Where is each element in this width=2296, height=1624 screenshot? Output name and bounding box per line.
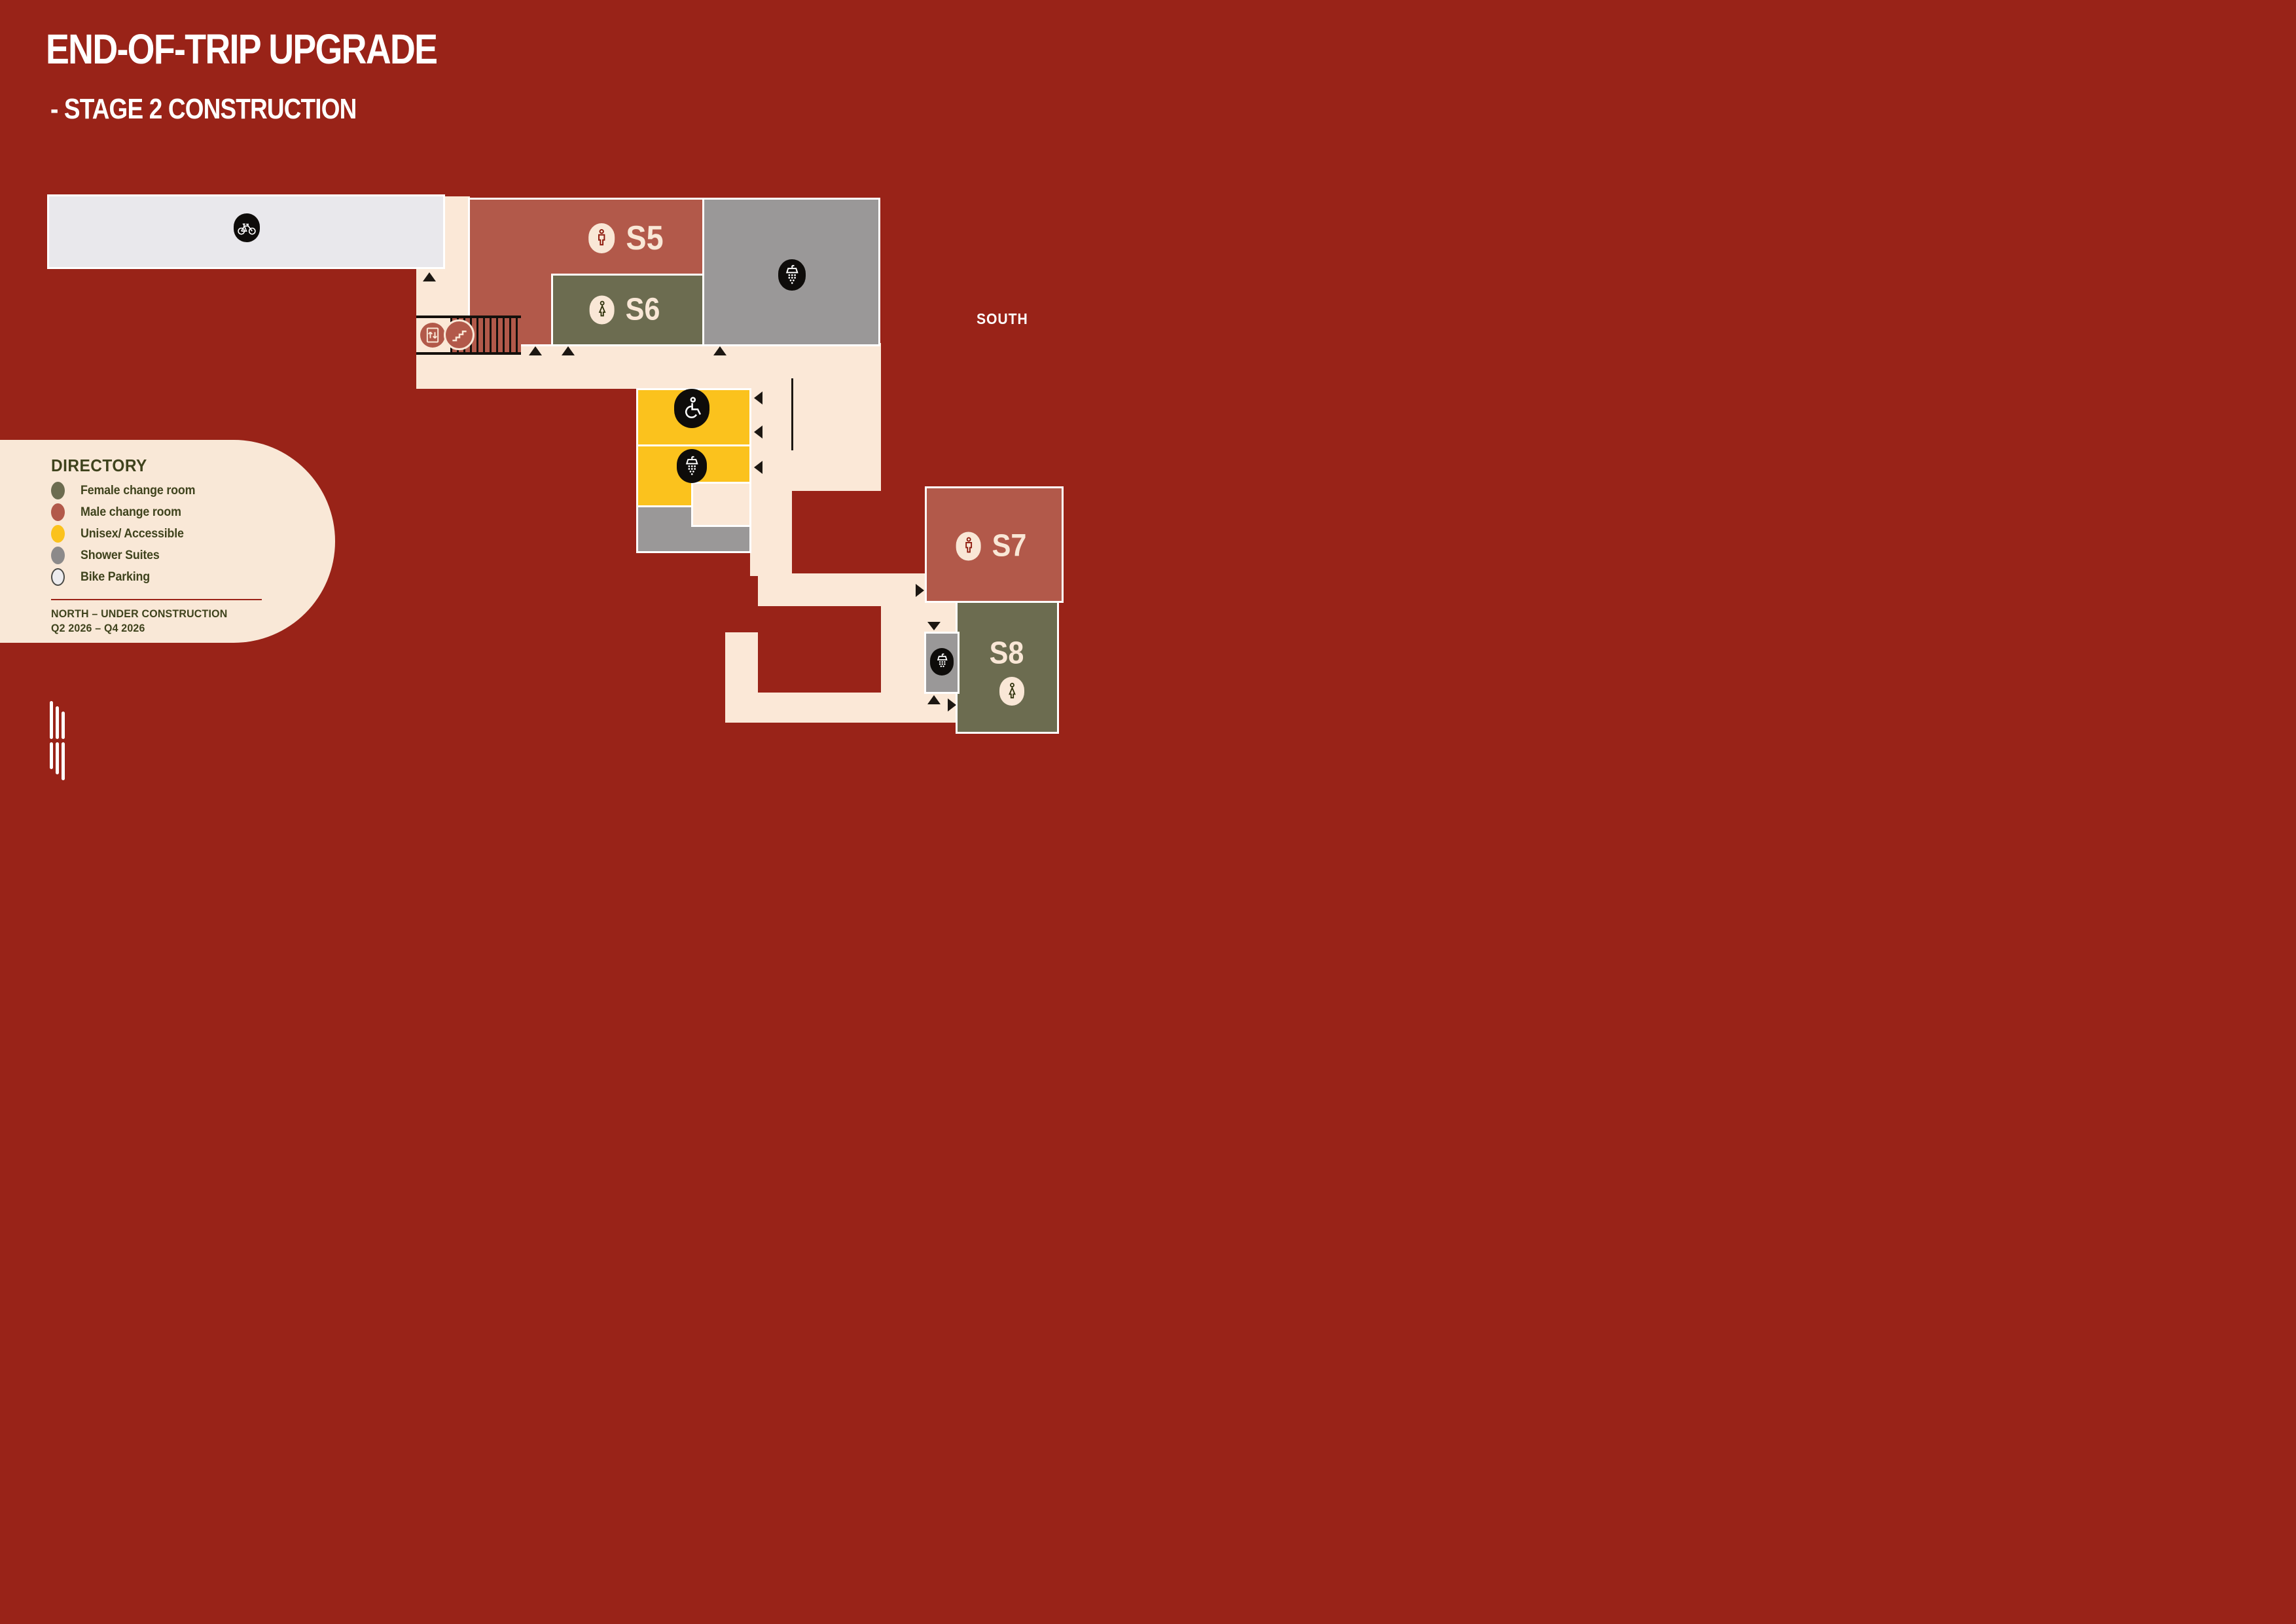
door-marker-unisex-1 [754, 391, 762, 405]
room-label-text: S5 [626, 219, 663, 258]
shower-icon-mid [677, 449, 707, 483]
legend-label: Bike Parking [81, 570, 150, 585]
female-icon [999, 677, 1024, 706]
door-marker-s8 [948, 698, 956, 712]
unisex-room-swatch [51, 525, 65, 543]
s5-label-group: S5 [588, 219, 666, 258]
walkway-right-of-unisex [751, 388, 881, 491]
walkway-bottom-band [725, 693, 958, 723]
room-label-text: S8 [990, 636, 1024, 672]
door-marker-shower-main [713, 346, 726, 355]
room-label-text: S6 [626, 292, 660, 328]
walkway-to-s7 [758, 573, 925, 606]
door-marker-s5-a [529, 346, 542, 355]
legend-label: Female change room [81, 484, 195, 498]
female-room-swatch [51, 482, 65, 499]
shower-icon-main [778, 259, 806, 291]
legend-item-shower: Shower Suites [51, 547, 164, 564]
legend-item-unisex: Unisex/ Accessible [51, 525, 190, 543]
construction-note-line1: NORTH – UNDER CONSTRUCTION [51, 607, 227, 621]
legend-label: Unisex/ Accessible [81, 527, 184, 541]
walkway-down-link [750, 490, 792, 576]
door-marker-shower-south-top [927, 622, 941, 630]
legend-label: Male change room [81, 505, 181, 520]
page-title: END-OF-TRIP UPGRADE [46, 25, 437, 73]
s6-label-group: S6 [590, 292, 662, 328]
door-marker-shower-mid [754, 461, 762, 474]
legend-item-female: Female change room [51, 482, 202, 499]
door-marker-s5-b [562, 346, 575, 355]
walkway-alcove [691, 482, 751, 527]
room-label-text: S7 [992, 528, 1027, 564]
s7-label-group: S7 [956, 528, 1029, 564]
legend-item-bike: Bike Parking [51, 568, 154, 586]
elevator-icon [420, 323, 445, 348]
male-icon [956, 532, 981, 560]
shower-suites-swatch [51, 547, 65, 564]
stairs-icon [444, 319, 475, 350]
door-marker-bike [423, 272, 436, 281]
directory-heading: DIRECTORY [51, 456, 147, 476]
corridor-wall-line [791, 378, 793, 450]
door-marker-s7 [916, 584, 924, 597]
male-icon [588, 223, 615, 253]
bike-icon [234, 213, 260, 242]
floor-plan-sign: END-OF-TRIP UPGRADE - STAGE 2 CONSTRUCTI… [0, 0, 1148, 812]
s8-label-text-group: S8 [988, 636, 1026, 672]
walkway-hook-strip [725, 632, 758, 723]
male-room-swatch [51, 503, 65, 521]
bike-parking-swatch [51, 568, 65, 586]
south-compass-label: SOUTH [977, 310, 1028, 328]
walkway-vertical-south [881, 605, 925, 695]
construction-note-line2: Q2 2026 – Q4 2026 [51, 622, 145, 635]
wheelchair-icon [674, 389, 709, 428]
shower-icon-south [930, 648, 954, 676]
door-marker-shower-south-bottom [927, 695, 941, 704]
female-icon [590, 295, 615, 324]
page-subtitle: - STAGE 2 CONSTRUCTION [50, 93, 356, 126]
door-marker-unisex-2 [754, 425, 762, 439]
directory-panel: DIRECTORY Female change room Male change… [0, 440, 335, 643]
legend-item-male: Male change room [51, 503, 188, 521]
legend-label: Shower Suites [81, 549, 160, 563]
directory-divider [51, 599, 262, 600]
